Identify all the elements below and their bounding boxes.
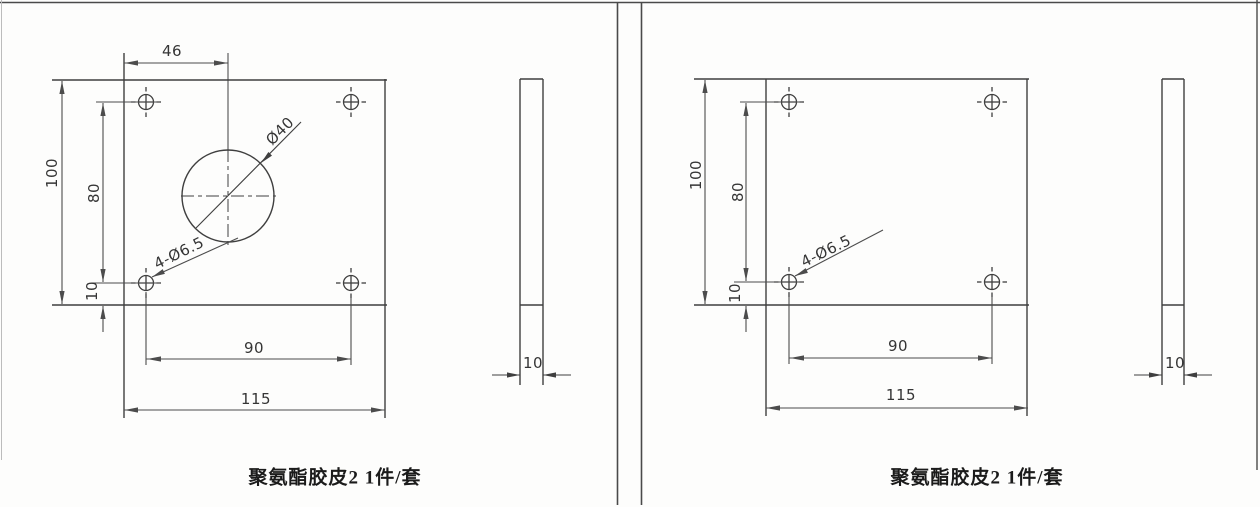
right-dim-100-label: 100: [687, 160, 705, 190]
right-caption: 聚氨酯胶皮2 1件/套: [890, 463, 1063, 490]
left-side-view: [492, 79, 571, 385]
left-dim-100-label: 100: [43, 158, 61, 188]
right-dim-90-label: 90: [888, 337, 908, 355]
left-caption: 聚氨酯胶皮2 1件/套: [248, 463, 421, 490]
right-dim-80-label: 80: [729, 182, 747, 202]
left-dimensions: [59, 60, 385, 412]
left-dim-80-label: 80: [85, 183, 103, 203]
right-dim-10-label: 10: [726, 283, 744, 303]
left-dim-90-label: 90: [244, 339, 264, 357]
left-dim-115-label: 115: [241, 390, 271, 408]
right-front-view-outline: [694, 79, 1029, 416]
left-dim-10-label: 10: [83, 281, 101, 301]
right-dimensions: [702, 80, 1028, 411]
left-dim-46-label: 46: [162, 42, 182, 60]
left-side-thickness-label: 10: [523, 354, 543, 372]
right-dim-115-label: 115: [886, 386, 916, 404]
left-center-hole: [181, 53, 301, 246]
right-side-thickness-label: 10: [1165, 354, 1185, 372]
right-side-view: [1134, 79, 1212, 385]
drawing-sheet: 46 100 80 10 Ø40 4-Ø6.5 90 115 10 聚氨酯胶皮2…: [0, 0, 1260, 507]
